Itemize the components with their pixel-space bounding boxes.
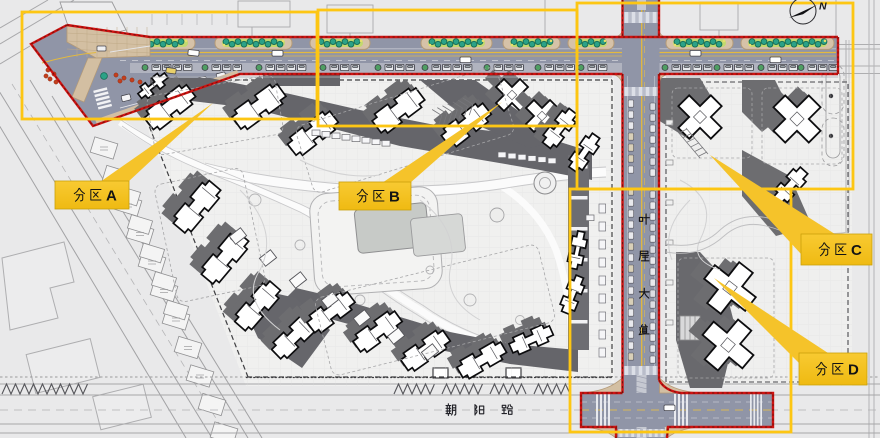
svg-text:C: C [851, 242, 862, 259]
svg-text:N: N [819, 1, 827, 13]
svg-text:A: A [106, 188, 117, 205]
svg-text:B: B [389, 189, 400, 206]
svg-text:D: D [848, 362, 859, 379]
